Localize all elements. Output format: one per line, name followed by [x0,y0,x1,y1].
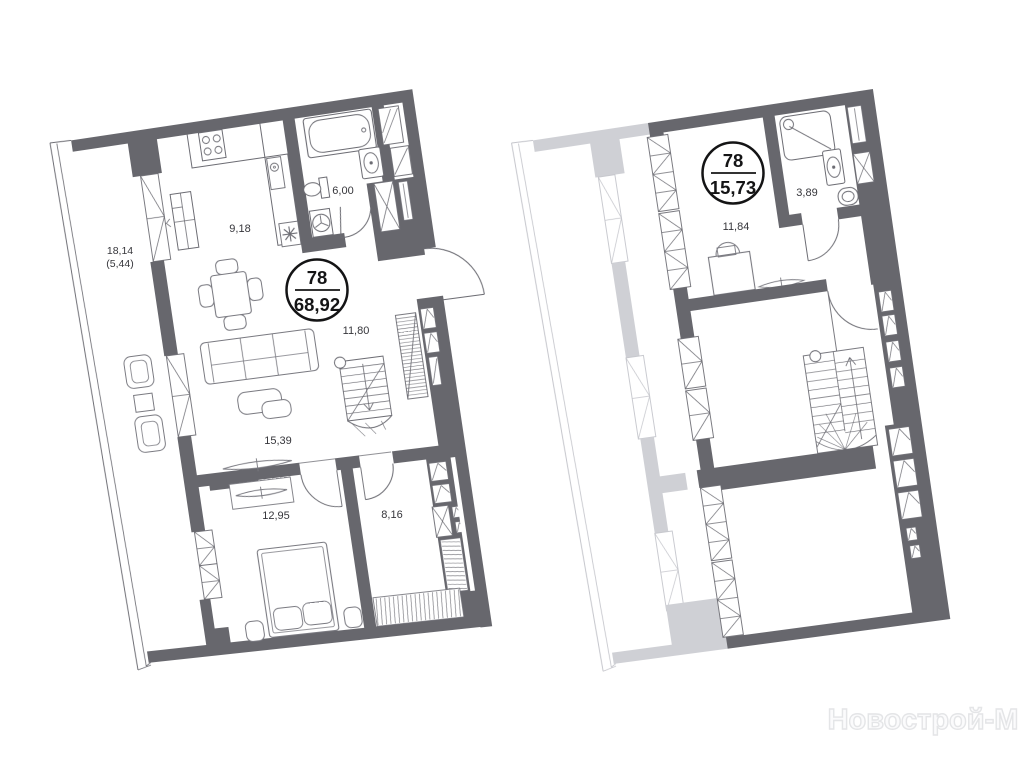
svg-text:Новострой-М: Новострой-М [828,704,1019,736]
svg-text:18,14: 18,14 [107,245,133,257]
svg-text:9,18: 9,18 [229,223,250,235]
svg-text:78: 78 [723,150,744,171]
svg-text:11,80: 11,80 [343,325,370,337]
svg-text:11,84: 11,84 [723,221,750,233]
svg-text:68,92: 68,92 [294,294,340,315]
svg-text:6,00: 6,00 [332,185,353,197]
svg-text:12,95: 12,95 [262,510,290,522]
svg-text:(5,44): (5,44) [106,258,133,270]
svg-text:15,73: 15,73 [710,177,756,198]
svg-text:8,16: 8,16 [381,509,402,521]
svg-text:78: 78 [307,267,328,288]
svg-text:3,89: 3,89 [796,187,817,199]
svg-text:15,39: 15,39 [264,435,292,447]
